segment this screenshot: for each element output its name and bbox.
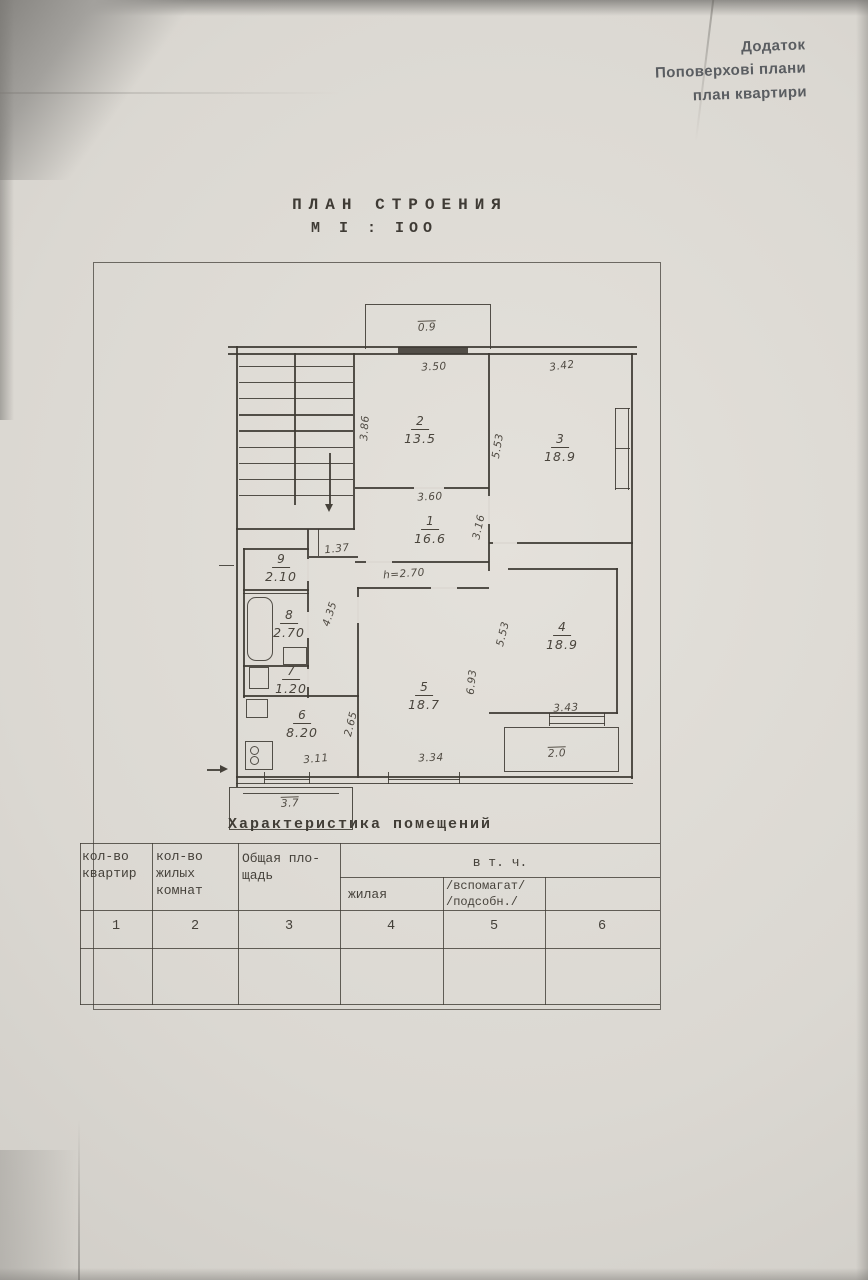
plan-line: [239, 398, 353, 399]
stove-burner: [250, 756, 259, 765]
room-number: 1: [421, 514, 439, 530]
plan-line: [488, 353, 490, 571]
col-number-2: 2: [191, 919, 199, 934]
corner-note: Додаток Поповерхові плани план квартири: [654, 33, 808, 108]
dimension-label: 3.34: [418, 752, 444, 765]
plan-line: [80, 948, 660, 949]
photo-shadow-top: [0, 0, 868, 16]
plan-line: [219, 565, 234, 566]
plan-line: [309, 772, 310, 784]
plan-line: [388, 772, 389, 784]
plan-line: [549, 713, 550, 726]
plan-line: [340, 877, 660, 878]
photo-shadow-bottom: [0, 1268, 868, 1280]
plan-line: [549, 716, 605, 717]
dimension-label: 3.11: [303, 752, 329, 766]
plan-line: [615, 408, 630, 409]
col-number-1: 1: [112, 919, 120, 934]
dimension-label: 3.60: [417, 490, 443, 503]
plan-line: [264, 772, 265, 784]
plan-line: [414, 487, 444, 489]
plan-line: [443, 877, 444, 1005]
col-number-6: 6: [598, 919, 606, 934]
col-number-5: 5: [490, 919, 498, 934]
plan-line: [80, 910, 660, 911]
plan-line: [236, 528, 355, 530]
plan-line: [236, 783, 633, 784]
plan-line: [307, 612, 309, 638]
room-label-2: 213.5: [404, 410, 436, 446]
col-number-4: 4: [387, 919, 395, 934]
plan-line: [80, 1004, 660, 1005]
toilet: [249, 667, 269, 689]
photo-shadow-left: [0, 0, 14, 420]
plan-title: ПЛАН СТРОЕНИЯ: [240, 196, 560, 214]
photo-shadow-bottomleft: [0, 1150, 80, 1280]
dimension-label: 3.7: [281, 796, 300, 810]
plan-line: [243, 589, 309, 591]
room-area: 16.6: [414, 531, 446, 546]
plan-line: [357, 587, 489, 589]
stove-burner: [250, 746, 259, 755]
group-header-incl: в т. ч.: [340, 855, 660, 872]
plan-line: [616, 568, 618, 714]
room-label-9: 92.10: [265, 548, 297, 584]
stair-direction-arrow: [325, 504, 333, 512]
plan-line: [459, 772, 460, 784]
room-number: 6: [293, 708, 311, 724]
plan-line: [236, 346, 238, 787]
room-area: 13.5: [404, 431, 436, 446]
room-label-1: 116.6: [414, 510, 446, 546]
room-label-6: 68.20: [286, 704, 318, 740]
dimension-label: 0.9: [418, 320, 437, 334]
plan-line: [615, 448, 630, 449]
plan-line: [604, 713, 605, 726]
sub-header-auxiliary: /вспомагат/ /подсобн./: [446, 879, 525, 910]
plan-line: [264, 779, 310, 780]
col-header-living-rooms: кол-во жилых комнат: [156, 849, 238, 900]
room-area: 18.9: [544, 449, 576, 464]
plan-line: [239, 463, 353, 464]
plan-line: [152, 843, 153, 1005]
plan-line: [80, 843, 660, 844]
plan-line: [239, 447, 353, 448]
plan-line: [239, 479, 353, 480]
room-area: 1.20: [275, 681, 307, 696]
plan-line: [309, 556, 358, 558]
plan-line: [357, 597, 359, 623]
plan-line: [508, 568, 618, 570]
plan-line: [239, 430, 353, 431]
room-number: 7: [282, 664, 300, 680]
staircase: [353, 353, 355, 530]
col-header-total-area: Общая пло- щадь: [242, 851, 338, 885]
room-area: 2.70: [273, 625, 305, 640]
plan-line: [243, 548, 245, 698]
room-number: 2: [411, 414, 429, 430]
dimension-label: 2.0: [548, 746, 567, 760]
plan-line: [318, 529, 319, 556]
plan-line: [615, 488, 630, 489]
photo-shadow-right: [856, 0, 868, 1280]
plan-line: [236, 776, 633, 778]
plan-line: [243, 593, 309, 594]
plan-line: [431, 587, 457, 589]
plan-line: [238, 843, 239, 1005]
room-label-3: 318.9: [544, 428, 576, 464]
room-area: 18.9: [546, 637, 578, 652]
plan-line: [493, 542, 517, 544]
entrance-arrow: [220, 765, 228, 773]
plan-line: [80, 843, 81, 1005]
paper-crease: [0, 92, 340, 94]
col-number-3: 3: [285, 919, 293, 934]
bathtub: [247, 597, 273, 661]
plan-line: [366, 561, 392, 563]
room-label-5: 518.7: [408, 676, 440, 712]
plan-line: [549, 723, 605, 724]
room-label-7: 71.20: [275, 660, 307, 696]
plan-line: [307, 559, 309, 581]
room-label-8: 82.70: [273, 604, 305, 640]
plan-line: [631, 353, 633, 779]
room-label-4: 418.9: [546, 616, 578, 652]
plan-line: [307, 669, 309, 687]
plan-line: [294, 353, 296, 505]
plan-line: [239, 382, 353, 383]
dimension-label: 3.50: [421, 360, 447, 373]
room-area: 2.10: [265, 569, 297, 584]
kitchen-fixture: [246, 699, 268, 718]
stove: [245, 741, 273, 770]
plan-line: [388, 779, 460, 780]
room-area: 18.7: [408, 697, 440, 712]
room-number: 8: [280, 608, 298, 624]
room-area: 8.20: [286, 725, 318, 740]
plan-line: [239, 495, 353, 496]
photo-shadow-topleft: [0, 0, 190, 180]
room-number: 9: [272, 552, 290, 568]
scanned-document-photo: Додаток Поповерхові плани план квартири …: [0, 0, 868, 1280]
plan-line: [243, 793, 339, 794]
plan-scale: М I : IОО: [214, 220, 534, 237]
plan-line: [239, 366, 353, 367]
plan-line: [488, 496, 490, 524]
room-number: 3: [551, 432, 569, 448]
plan-line: [239, 414, 353, 415]
table-caption: Характеристика помещений: [150, 816, 570, 833]
room-number: 4: [553, 620, 571, 636]
dimension-label: 3.43: [553, 701, 579, 714]
sub-header-living: жилая: [348, 887, 387, 904]
paper-edge: [78, 1120, 80, 1280]
plan-line: [545, 877, 546, 1005]
col-header-apartments: кол-во квартир: [82, 849, 150, 883]
dimension-label: 3.86: [358, 415, 372, 441]
room-number: 5: [415, 680, 433, 696]
